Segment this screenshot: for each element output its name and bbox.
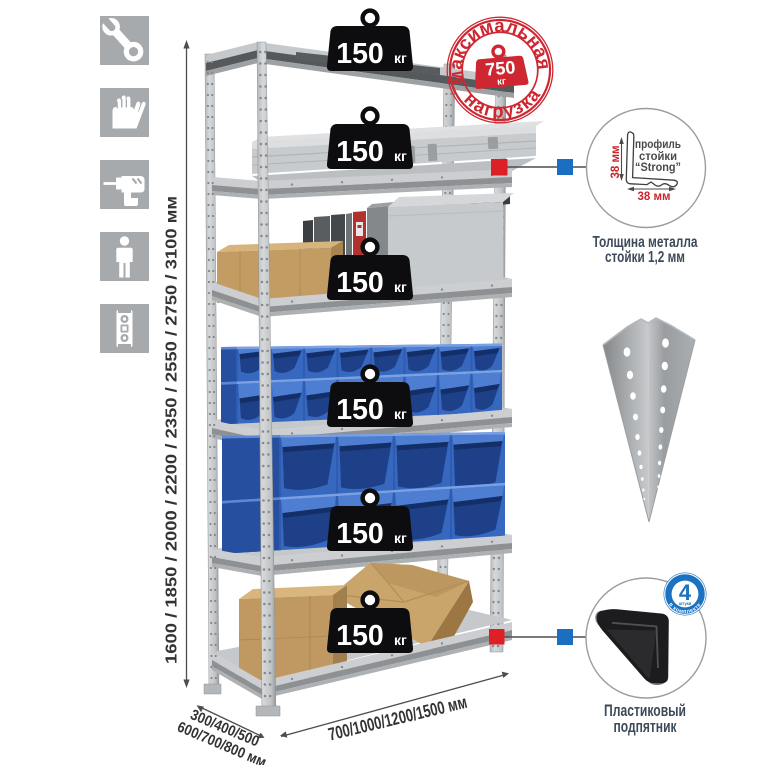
- svg-text:150: 150: [336, 136, 384, 168]
- svg-text:кг: кг: [394, 406, 407, 422]
- svg-text:1600 / 1850 / 2000 / 2200 / 23: 1600 / 1850 / 2000 / 2200 / 2350 / 2550 …: [164, 196, 181, 664]
- svg-text:кг: кг: [394, 632, 407, 648]
- svg-text:150: 150: [336, 518, 384, 550]
- svg-text:38 мм: 38 мм: [637, 191, 670, 203]
- svg-text:кг: кг: [394, 50, 407, 66]
- svg-text:штуки: штуки: [679, 601, 692, 606]
- svg-text:150: 150: [336, 38, 384, 70]
- svg-text:150: 150: [336, 620, 384, 652]
- svg-text:38 мм: 38 мм: [610, 145, 622, 178]
- svg-text:кг: кг: [394, 530, 407, 546]
- svg-text:кг: кг: [497, 76, 507, 88]
- svg-text:стойки 1,2 мм: стойки 1,2 мм: [605, 249, 685, 266]
- svg-text:кг: кг: [394, 148, 407, 164]
- svg-text:кг: кг: [394, 279, 407, 295]
- svg-text:150: 150: [336, 267, 384, 299]
- svg-text:150: 150: [336, 394, 384, 426]
- svg-text:“Strong”: “Strong”: [635, 162, 681, 174]
- svg-text:профиль: профиль: [635, 139, 681, 151]
- svg-text:подпятник: подпятник: [614, 718, 678, 736]
